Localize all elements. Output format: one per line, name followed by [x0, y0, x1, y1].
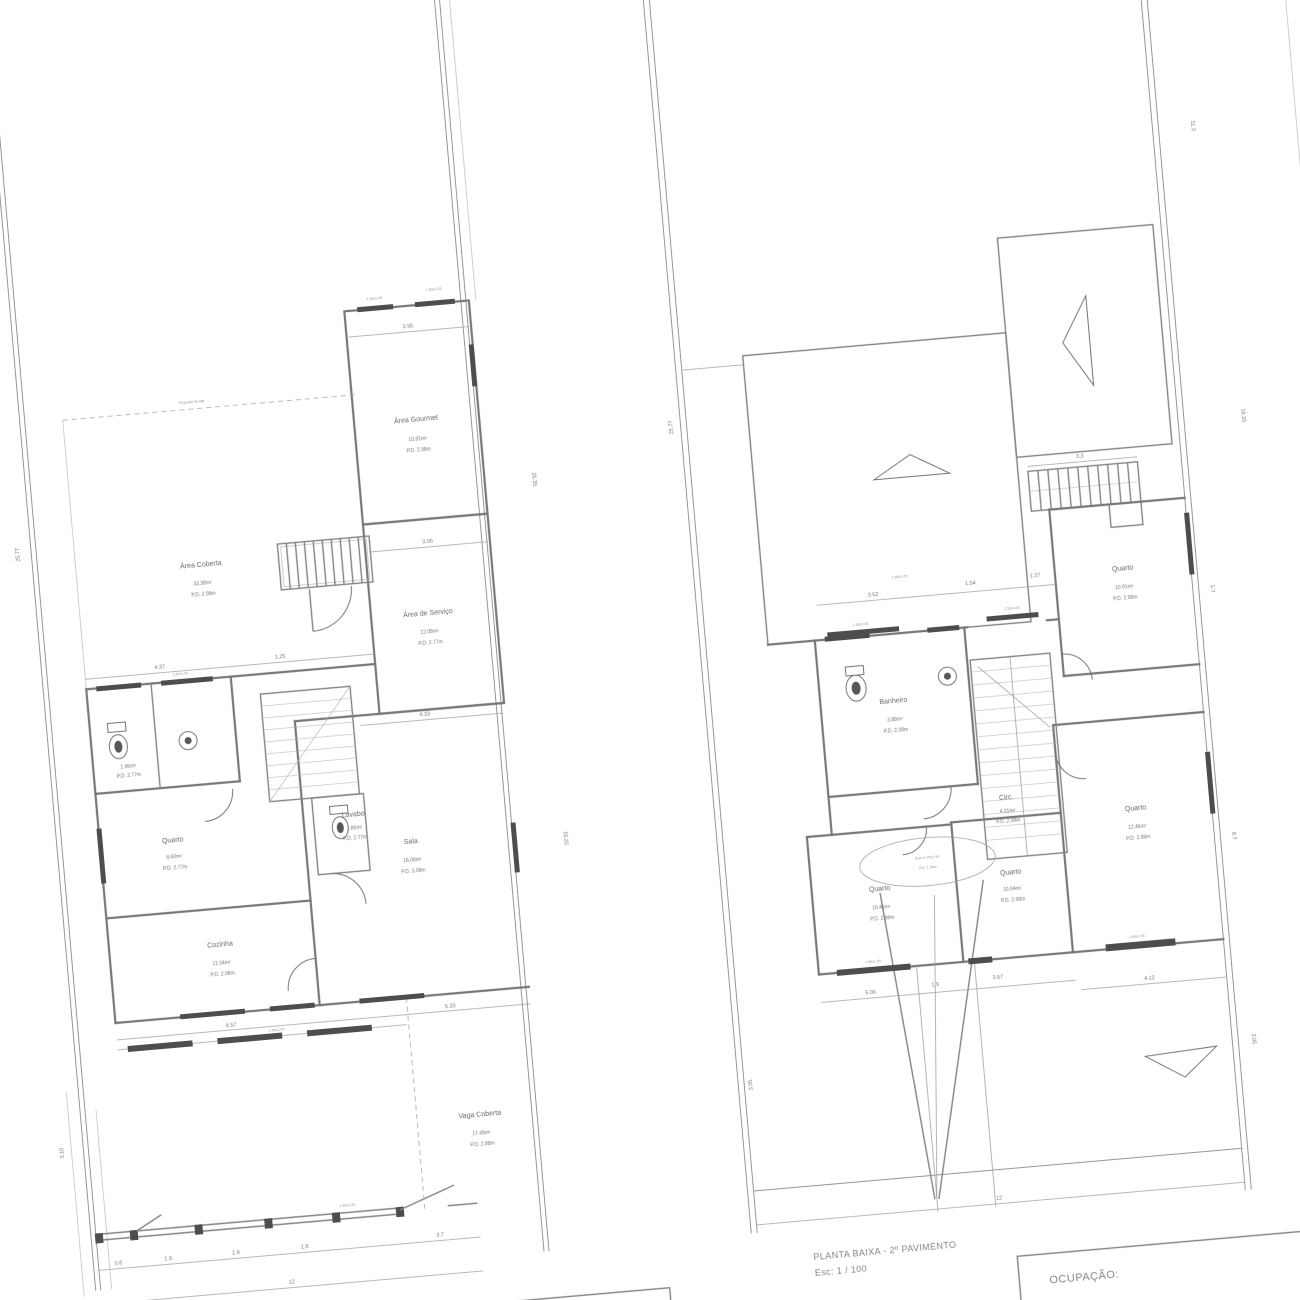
- svg-text:11.3: 11.3: [1189, 120, 1196, 131]
- svg-text:3.52: 3.52: [867, 592, 878, 599]
- fence-dim: 1.9: [164, 1256, 172, 1263]
- svg-text:1.54: 1.54: [965, 580, 976, 587]
- svg-text:3.95: 3.95: [402, 323, 413, 330]
- svg-text:1.27: 1.27: [1029, 573, 1040, 580]
- svg-text:1.25: 1.25: [275, 654, 286, 661]
- svg-text:4.37: 4.37: [154, 664, 165, 671]
- floorplan-drawing: 0.8 1.9 1.9 1.8 3.7 12: [0, 0, 1300, 1300]
- lot-width-dim: 12: [288, 1279, 295, 1286]
- scanned-floorplan-sheet: 0.8 1.9 1.9 1.8 3.7 12: [0, 0, 1300, 1300]
- svg-text:26.35: 26.35: [530, 472, 537, 486]
- svg-text:25.77: 25.77: [15, 548, 22, 562]
- svg-text:16.25: 16.25: [561, 831, 568, 845]
- svg-text:4.12: 4.12: [1144, 975, 1155, 982]
- svg-text:3.10: 3.10: [59, 1148, 66, 1159]
- svg-text:5.06: 5.06: [865, 990, 876, 997]
- fence-dim: 1.8: [301, 1244, 309, 1251]
- fence-dim: 3.7: [436, 1232, 444, 1239]
- svg-text:8.7: 8.7: [1230, 832, 1237, 840]
- svg-text:3.3: 3.3: [1076, 453, 1084, 460]
- svg-text:3.06: 3.06: [422, 539, 433, 546]
- fence-dim: 0.8: [114, 1260, 122, 1267]
- svg-text:5.7: 5.7: [1208, 585, 1215, 593]
- svg-text:5.33: 5.33: [445, 1003, 456, 1010]
- svg-text:3.05: 3.05: [1250, 1033, 1257, 1044]
- svg-text:4.33: 4.33: [419, 711, 430, 718]
- svg-text:16.25: 16.25: [1239, 408, 1246, 422]
- svg-text:Circ.: Circ.: [999, 794, 1014, 802]
- svg-text:3.67: 3.67: [992, 974, 1003, 981]
- svg-text:3.05: 3.05: [748, 1079, 755, 1090]
- svg-text:Sala: Sala: [404, 838, 419, 846]
- lot-width-dim: 12: [996, 1195, 1003, 1202]
- svg-text:25.77: 25.77: [668, 420, 675, 434]
- svg-text:4.57: 4.57: [226, 1022, 237, 1029]
- svg-text:1.5: 1.5: [931, 982, 939, 989]
- paper-background: [0, 0, 1300, 1300]
- fence-dim: 1.9: [232, 1250, 240, 1257]
